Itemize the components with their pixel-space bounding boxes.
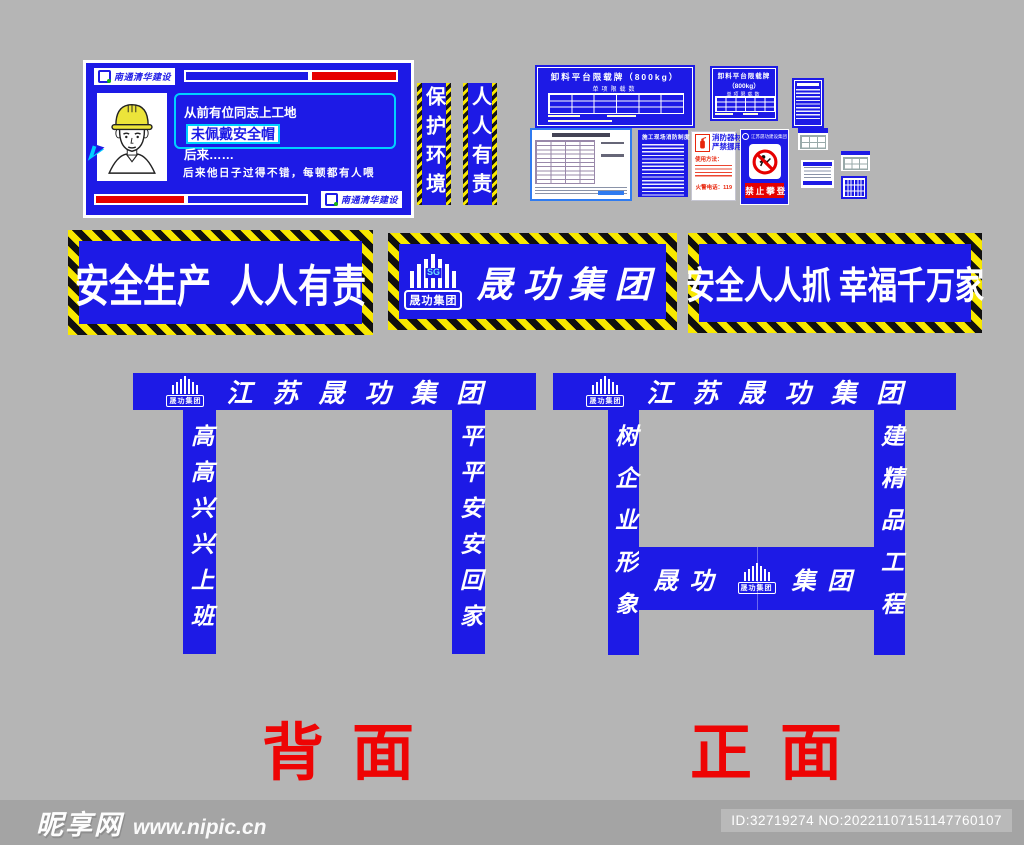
- logo-building-icon: SG: [410, 254, 456, 288]
- fire-equipment-title: 消防器材 严禁挪用: [712, 134, 742, 151]
- punchline-caption: 后来他日子过得不错，每顿都有人喂: [183, 165, 405, 180]
- micro-title-bar: [552, 133, 609, 137]
- pillar-text: 建精品工程: [873, 424, 907, 655]
- logo-label: 晟功集团: [738, 582, 776, 594]
- load-limit-sign-small: 卸料平台限载牌 （800kg） 单项限载数: [710, 66, 778, 121]
- load-limit-subtitle: 单项限载数: [535, 84, 695, 93]
- shenggong-logo: SG 晟功集团: [404, 254, 462, 310]
- label-back-side: 背面: [262, 702, 442, 792]
- fire-rules-title: 施工现场消防制度: [642, 133, 684, 141]
- pillar-text: 平平安安回家: [452, 424, 486, 654]
- load-limit-sign-large: 卸料平台限载牌（800kg） 单项限载数: [535, 65, 695, 128]
- micro-rules-sign: [792, 78, 824, 128]
- gate-back-header: SG 晟功集团 江苏晟功集团: [133, 373, 536, 410]
- no-climbing-icon: [751, 148, 779, 176]
- decor-bar-red: [96, 196, 184, 203]
- gate-back-left-pillar: 高高兴兴上班: [183, 410, 216, 654]
- banner-text: 晟功集团: [476, 256, 660, 308]
- gate-front-beam: 晟功 SG 晟功集团 集团: [639, 547, 874, 610]
- pillar-text: 树企业形象: [607, 424, 641, 655]
- image-id-chip: ID:32719274 NO:20221107151147760107: [721, 809, 1012, 832]
- bubble-line1: 从前有位同志上工地: [184, 106, 297, 120]
- vertical-banner-text: 人人有责: [466, 86, 495, 202]
- record-table: [535, 140, 595, 184]
- no-climbing-label: 禁止攀登: [745, 183, 784, 198]
- beam-text-left: 晟功: [650, 561, 726, 596]
- shenggong-logo: SG 晟功集团: [738, 563, 776, 594]
- logo-label: 晟功集团: [404, 290, 462, 310]
- board-body: [535, 140, 627, 184]
- speech-bubble: 从前有位同志上工地未佩戴安全帽 后来……: [174, 93, 396, 149]
- micro-label-bar: [601, 142, 624, 145]
- mini-form-sign-2: [801, 160, 834, 188]
- mini-sign-header-bar: [798, 128, 828, 133]
- mini-sign-header-bar: [841, 151, 870, 155]
- load-limit-table: [715, 96, 775, 112]
- pillar-text: 高高兴兴上班: [183, 424, 217, 654]
- decor-bar-blue: [186, 72, 308, 80]
- bubble-highlight: 未佩戴安全帽: [186, 124, 280, 144]
- micro-company-logo-bar: [598, 191, 624, 195]
- fire-equipment-header: 消防器材 严禁挪用: [695, 134, 732, 152]
- mini-form-grid: [843, 157, 868, 170]
- load-limit-title: 卸料平台限载牌: [710, 70, 778, 80]
- micro-text-line: [548, 120, 612, 122]
- micro-text-lines: [695, 165, 732, 178]
- mini-form-grid: [800, 135, 826, 149]
- load-limit-table: [548, 93, 684, 114]
- gate-header-text: 江苏晟功集团: [642, 373, 922, 410]
- shenggong-logo: SG 晟功集团: [166, 376, 204, 407]
- bubble-line2: 后来……: [184, 145, 390, 165]
- vertical-banner-responsibility: 人人有责: [463, 83, 497, 205]
- company-logo-dot-icon: [742, 133, 749, 140]
- mini-form-grid: [843, 178, 865, 197]
- fire-equipment-title-line2: 严禁挪用: [712, 143, 742, 152]
- worker-cartoon-box: [97, 93, 167, 181]
- fire-equipment-sign: 消防器材 严禁挪用 使用方法： 火警电话：119: [691, 131, 736, 201]
- helmet-cartoon-sign: 南通清华建设 从前有位同志上工地未佩戴: [83, 60, 414, 218]
- fire-phone-label: 火警电话：119: [695, 183, 732, 191]
- mini-form-sign-3: [841, 151, 870, 171]
- vertical-banner-environment: 保护环境: [417, 83, 451, 205]
- brand-logo-icon: [98, 70, 111, 83]
- micro-label-bar: [601, 154, 624, 157]
- logo-label: 晟功集团: [586, 395, 624, 407]
- decor-bar-red: [312, 72, 396, 80]
- logo-label: 晟功集团: [166, 395, 204, 407]
- micro-text-line: [607, 115, 636, 117]
- micro-title-bar: [797, 83, 818, 86]
- load-limit-title: 卸料平台限载牌（800kg）: [535, 71, 695, 83]
- banner-text: 安全生产 人人有责: [75, 251, 366, 315]
- micro-text-line: [548, 115, 580, 117]
- logo-building-icon: SG: [172, 376, 198, 394]
- gate-front-left-pillar: 树企业形象: [608, 410, 639, 655]
- logo-sg-monogram: SG: [426, 268, 441, 278]
- brand-logo-icon: [325, 193, 338, 206]
- micro-text-line: [743, 113, 758, 115]
- vertical-banner-text: 保护环境: [420, 86, 449, 202]
- fire-protection-rules-sign: 施工现场消防制度: [638, 130, 688, 197]
- gate-back-right-pillar: 平平安安回家: [452, 410, 485, 654]
- logo-building-icon: SG: [592, 376, 618, 394]
- usage-label: 使用方法：: [695, 155, 732, 163]
- brand-badge-top-left: 南通清华建设: [94, 68, 175, 85]
- banner-safe-production: 安全生产 人人有责: [68, 230, 373, 335]
- brand-badge-bottom-right: 南通清华建设: [321, 191, 402, 208]
- mini-sign-footer-bar: [803, 181, 832, 185]
- mini-form-sign-1: [798, 128, 828, 150]
- mini-sign-header-bar: [803, 162, 832, 166]
- banner-group-name: SG 晟功集团 晟功集团: [388, 233, 677, 330]
- shenggong-logo: SG 晟功集团: [586, 376, 624, 407]
- no-climbing-header: 江苏晟功建设集团: [741, 133, 788, 140]
- no-climbing-sign: 江苏晟功建设集团 禁止攀登: [740, 129, 789, 205]
- design-sheet-canvas: 南通清华建设 从前有位同志上工地未佩戴: [0, 0, 1024, 845]
- gate-front-right-pillar: 建精品工程: [874, 410, 905, 655]
- label-front-side: 正面: [690, 702, 870, 792]
- decor-bar-blue: [188, 196, 306, 203]
- site-branding: 昵享网 www.nipic.cn: [36, 803, 266, 842]
- brand-name: 南通清华建设: [341, 193, 398, 206]
- load-limit-title-line2: （800kg）: [710, 80, 778, 90]
- beam-text-right: 集团: [788, 561, 864, 596]
- brand-name: 南通清华建设: [114, 70, 171, 83]
- company-name: 江苏晟功建设集团: [751, 134, 787, 140]
- banner-text: 安全人人抓 幸福千万家: [686, 256, 984, 311]
- site-name: 昵享网: [36, 803, 123, 842]
- micro-text-lines: [796, 89, 820, 121]
- logo-building-icon: SG: [744, 563, 770, 581]
- fire-extinguisher-icon: [695, 134, 710, 152]
- micro-text-lines: [804, 167, 831, 180]
- site-url: www.nipic.cn: [133, 816, 266, 840]
- certificate-column: [598, 140, 627, 184]
- decor-bars-top: [184, 70, 398, 82]
- gate-header-text: 江苏晟功集团: [222, 373, 502, 410]
- banner-safety-happiness: 安全人人抓 幸福千万家: [688, 233, 982, 333]
- worker-safety-record-board: [530, 128, 632, 201]
- prohibition-pictogram-box: [749, 144, 781, 179]
- gate-front-header: SG 晟功集团 江苏晟功集团: [553, 373, 956, 410]
- micro-text-line: [715, 113, 733, 115]
- decor-bars-bottom: [94, 194, 308, 205]
- micro-text-lines: [642, 144, 684, 196]
- worker-cartoon-icon: [103, 99, 161, 175]
- mini-form-sign-4: [841, 176, 867, 199]
